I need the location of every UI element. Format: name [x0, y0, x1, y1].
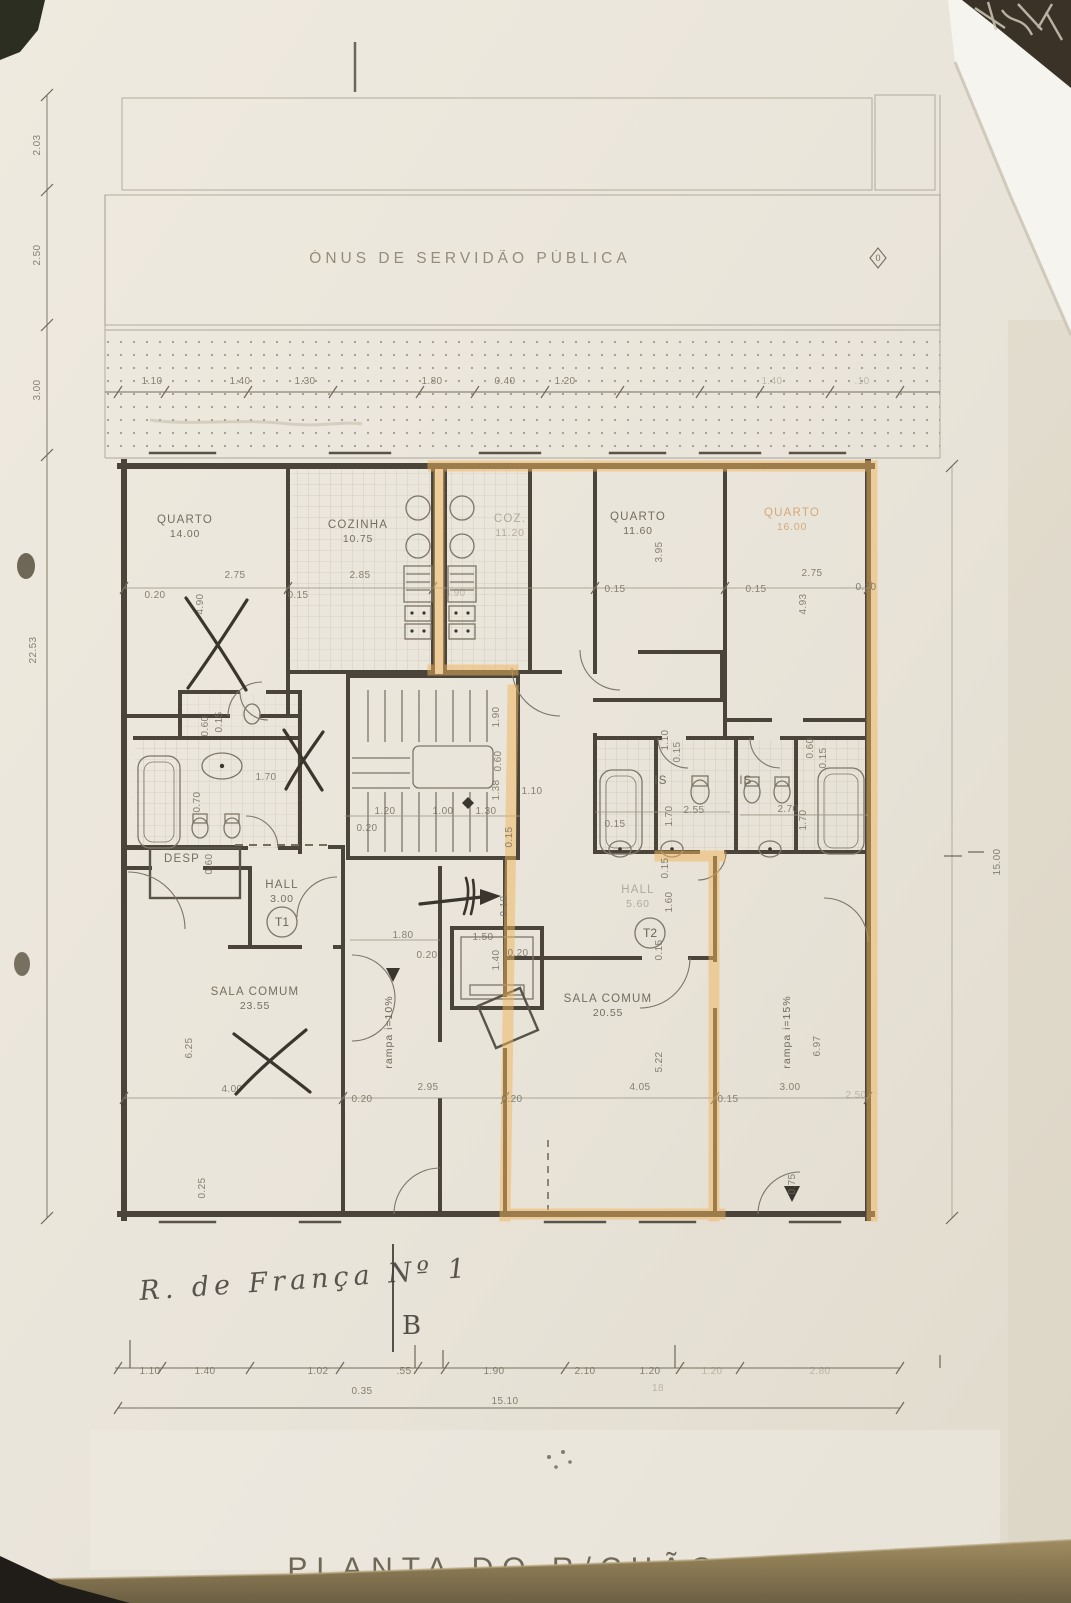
dimension-label: 1.10 — [660, 729, 671, 750]
dimension-label: 1.90 — [491, 706, 502, 727]
dimension-label: 0.15 — [604, 584, 625, 595]
dimension-label: 2.50 — [845, 1090, 866, 1101]
dimension-label: 1.00 — [432, 806, 453, 817]
ramp-label: rampa i=10% — [383, 995, 395, 1068]
dimension-label: 4.05 — [629, 1082, 650, 1093]
floor-plan-photo: ÓNUS DE SERVIDÃO PÚBLICA 0 — [0, 0, 1071, 1603]
dimension-label: 0.20 — [144, 590, 165, 601]
unit-badge-label: T1 — [275, 915, 289, 929]
dimension-label: 1.38 — [491, 779, 502, 800]
dimension-label: 1.90 — [483, 1366, 504, 1377]
dimension-label: 1.50 — [472, 932, 493, 943]
room-name-label: DESP — [164, 853, 200, 865]
dimension-label: 2.10 — [574, 1366, 595, 1377]
room-name-label: QUARTO — [764, 507, 820, 519]
dimension-label: 1.20 — [639, 1366, 660, 1377]
dimension-label: 0.15 — [504, 826, 515, 847]
room-name-label: HALL — [621, 884, 655, 896]
dimension-label: 1.70 — [798, 809, 809, 830]
dimension-label: 1.20 — [701, 1366, 722, 1377]
room-name-label: SALA COMUM — [564, 993, 653, 1005]
room-area-label: 11.20 — [495, 527, 525, 539]
room-area-label: 14.00 — [170, 528, 200, 540]
dimension-label: 1.20 — [554, 376, 575, 387]
dimension-label: 0.10 — [499, 895, 510, 916]
dimension-label: 1.80 — [421, 376, 442, 387]
room-area-label: 3.00 — [270, 893, 294, 905]
dimension-label: 1.10 — [521, 786, 542, 797]
dimension-label: 0.20 — [416, 950, 437, 961]
dimension-label: 1.60 — [664, 891, 675, 912]
dimension-label: 15.10 — [491, 1396, 518, 1407]
dimension-label: 18 — [652, 1383, 664, 1394]
room-area-label: 10.75 — [343, 533, 373, 545]
dimension-label: 2.75 — [801, 568, 822, 579]
dimension-label: 2.50 — [32, 244, 43, 265]
dimension-label: 4.93 — [798, 593, 809, 614]
dimension-label: 0.60 — [805, 737, 816, 758]
dimension-label: .55 — [396, 1366, 411, 1377]
dimension-label: 0.25 — [197, 1177, 208, 1198]
ramp-label: rampa i=15% — [781, 995, 793, 1068]
servitude-band-label: ÓNUS DE SERVIDÃO PÚBLICA — [309, 250, 630, 267]
dimension-label: 2.55 — [683, 805, 704, 816]
dimension-label: 1.30 — [294, 376, 315, 387]
dimension-label: 2.95 — [417, 1082, 438, 1093]
dimension-label: 0.70 — [192, 791, 203, 812]
room-name-label: COZINHA — [328, 519, 388, 531]
dimension-label: 0.35 — [351, 1386, 372, 1397]
dimension-label: 1.10 — [139, 1366, 160, 1377]
room-area-label: 11.60 — [623, 525, 653, 537]
dimension-label: 0.60 — [493, 750, 504, 771]
dimension-label: 6.25 — [184, 1037, 195, 1058]
dimension-label: 0.60 — [204, 853, 215, 874]
dimension-label: 1.40 — [194, 1366, 215, 1377]
dimension-label: 15.00 — [992, 848, 1003, 875]
dimension-label: 22.53 — [28, 636, 39, 663]
dimension-label: 5.22 — [654, 1051, 665, 1072]
dimension-label: 0.15 — [604, 819, 625, 830]
dimension-label: 0.15 — [287, 590, 308, 601]
dimension-label: 1.70 — [664, 805, 675, 826]
dimension-label: 0.15 — [654, 939, 665, 960]
dimension-label: 1.40 — [229, 376, 250, 387]
dimension-label: 0.75 — [787, 1173, 798, 1194]
section-letter-label: B — [402, 1311, 421, 1341]
dimension-label: 0.20 — [507, 948, 528, 959]
room-name-label: HALL — [265, 879, 299, 891]
dimension-label: 0.15 — [214, 711, 225, 732]
dimension-label: 0.20 — [356, 823, 377, 834]
dimension-label: 0.15 — [660, 857, 671, 878]
room-area-label: 23.55 — [240, 1000, 270, 1012]
dimension-label: 1.40 — [491, 949, 502, 970]
dimension-label: 2.03 — [32, 134, 43, 155]
dimension-label: 1.10 — [141, 376, 162, 387]
unit-badge-label: T2 — [643, 926, 657, 940]
dimension-label: 1.70 — [255, 772, 276, 783]
dimension-label: 1.02 — [307, 1366, 328, 1377]
dimension-label: 0.15 — [818, 747, 829, 768]
dimension-label: .10 — [854, 376, 869, 387]
dimension-label: 2.80 — [809, 1366, 830, 1377]
dimension-label: 0.40 — [494, 376, 515, 387]
dimension-label: 3.95 — [654, 541, 665, 562]
floor-plan-drawing: ÓNUS DE SERVIDÃO PÚBLICA 0 — [0, 0, 1071, 1603]
dimension-label: 1.20 — [374, 806, 395, 817]
room-name-label: SALA COMUM — [211, 986, 300, 998]
dimension-label: 0.15 — [672, 741, 683, 762]
dimension-label: 3.90 — [444, 588, 465, 599]
room-name-label: IS — [739, 775, 752, 787]
dimension-label: 3.00 — [779, 1082, 800, 1093]
dimension-label: 6.97 — [812, 1035, 823, 1056]
room-name-label: QUARTO — [157, 514, 213, 526]
dimension-label: 0.20 — [501, 1094, 522, 1105]
dimension-label: 0.15 — [745, 584, 766, 595]
dimension-label: 1.80 — [392, 930, 413, 941]
dimension-label: 3.00 — [32, 379, 43, 400]
dimension-label: 0.20 — [855, 582, 876, 593]
room-area-label: 16.00 — [777, 521, 807, 533]
room-area-label: 5.60 — [626, 898, 650, 910]
paper-edge-shading — [1008, 320, 1071, 1560]
dimension-label: 2.70 — [777, 804, 798, 815]
room-area-label: 20.55 — [593, 1007, 623, 1019]
dimension-label: 2.85 — [349, 570, 370, 581]
dimension-label: 0.20 — [351, 1094, 372, 1105]
dimension-label: 0.15 — [717, 1094, 738, 1105]
room-name-label: IS — [654, 775, 667, 787]
room-name-label: QUARTO — [610, 511, 666, 523]
dimension-label: 1.30 — [475, 806, 496, 817]
paper-bottom-light — [90, 1430, 1000, 1570]
room-name-label: COZ. — [494, 513, 526, 525]
dimension-label: 1.40 — [761, 376, 782, 387]
zero-marker-label: 0 — [875, 253, 880, 263]
dimension-label: 2.75 — [224, 570, 245, 581]
dimension-label: 0.60 — [200, 715, 211, 736]
